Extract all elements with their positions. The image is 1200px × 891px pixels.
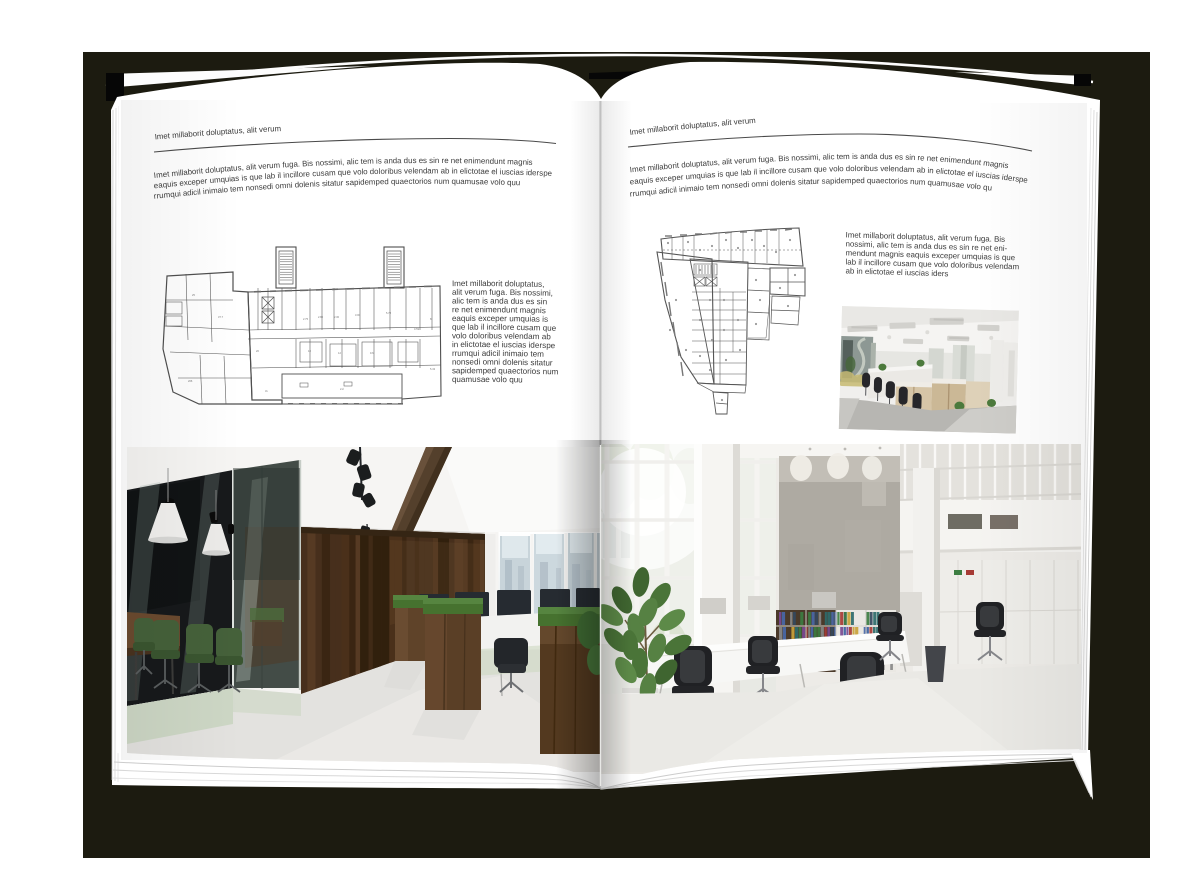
- svg-text:2-й: 2-й: [340, 387, 344, 391]
- svg-text:5.43: 5.43: [430, 367, 436, 371]
- svg-text:2.75: 2.75: [303, 317, 309, 321]
- svg-text:rrumqui adicil inimaio tem: rrumqui adicil inimaio tem: [452, 349, 544, 359]
- svg-text:alic tem is anda dus es sin: alic tem is anda dus es sin: [452, 296, 547, 306]
- svg-text:5.78: 5.78: [386, 311, 392, 315]
- svg-text:in elictotae el iuscias idersp: in elictotae el iuscias iderspe: [452, 340, 556, 350]
- svg-text:2.80: 2.80: [318, 315, 324, 319]
- svg-text:9.6: 9.6: [370, 351, 374, 355]
- svg-text:eaquis exceper umquias is: eaquis exceper umquias is: [452, 314, 548, 324]
- svg-text:alit verum fuga. Bis nossimi,: alit verum fuga. Bis nossimi,: [452, 288, 553, 298]
- svg-text:2.30: 2.30: [334, 315, 340, 319]
- svg-text:Imet millaborit doluptatus,: Imet millaborit doluptatus,: [452, 279, 545, 289]
- svg-text:3.00: 3.00: [355, 313, 361, 317]
- svg-text:quamusae volo quu: quamusae volo quu: [452, 375, 523, 384]
- svg-text:que lab il incillore cusam que: que lab il incillore cusam que: [452, 323, 557, 333]
- svg-text:0.59: 0.59: [414, 327, 420, 331]
- svg-text:re net enimendunt magnis: re net enimendunt magnis: [452, 305, 546, 315]
- svg-text:volo doloribus velendam ab: volo doloribus velendam ab: [452, 331, 551, 341]
